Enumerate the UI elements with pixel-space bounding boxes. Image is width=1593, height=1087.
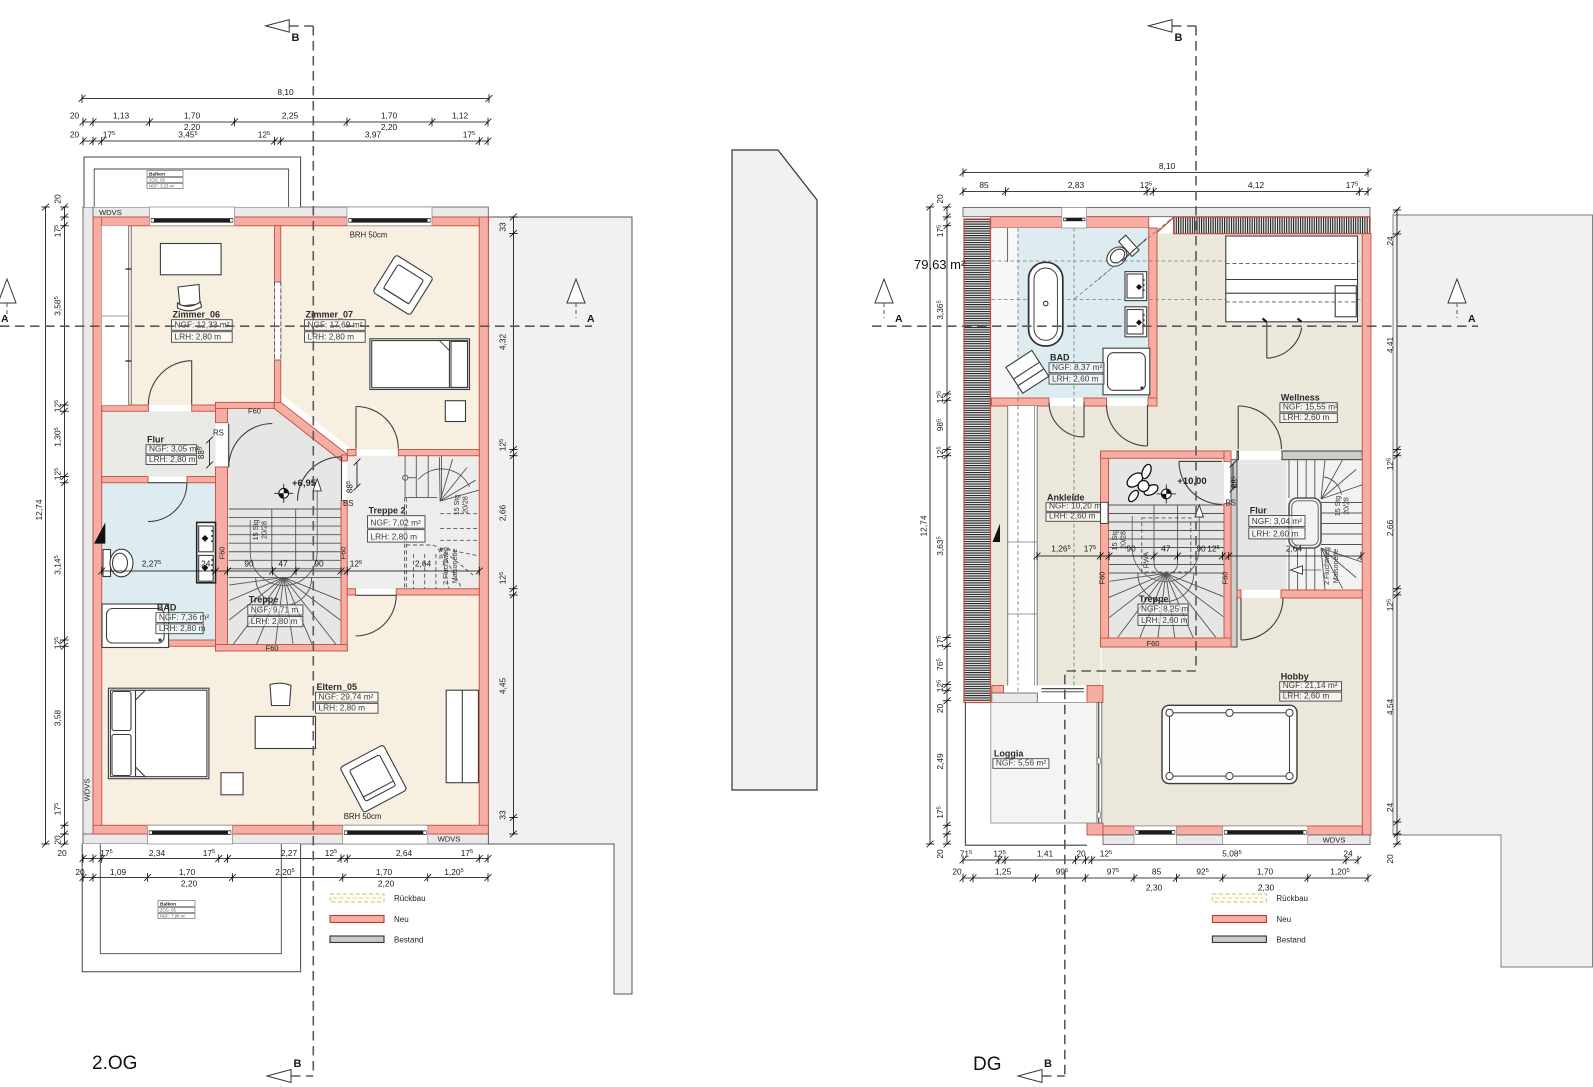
- svg-text:DG: DG: [973, 1054, 1002, 1075]
- svg-text:BRH 50cm: BRH 50cm: [350, 231, 388, 240]
- svg-text:2,20: 2,20: [181, 879, 198, 889]
- svg-text:LRH: 2,80 m: LRH: 2,80 m: [159, 623, 206, 633]
- svg-text:2,30: 2,30: [1146, 883, 1163, 893]
- svg-text:NGF: 29,74 m²: NGF: 29,74 m²: [319, 691, 374, 701]
- svg-text:A: A: [1, 313, 9, 325]
- svg-text:Neu: Neu: [1276, 915, 1291, 924]
- svg-text:Maisonette: Maisonette: [452, 549, 459, 583]
- svg-text:LRH: 2,80 m: LRH: 2,80 m: [308, 332, 355, 342]
- svg-text:NGF: 17,69 m²: NGF: 17,69 m²: [308, 320, 363, 330]
- svg-text:90: 90: [1196, 544, 1206, 554]
- svg-text:NGF: 7,02 m²: NGF: 7,02 m²: [371, 518, 421, 528]
- svg-text:1,70: 1,70: [184, 111, 201, 121]
- svg-text:1,70: 1,70: [179, 867, 196, 877]
- svg-text:LRH: 2,80 m: LRH: 2,80 m: [319, 703, 366, 713]
- svg-text:4,45: 4,45: [498, 678, 508, 695]
- svg-text:RS: RS: [213, 429, 224, 438]
- svg-text:85: 85: [1152, 867, 1162, 877]
- svg-text:Balkon: Balkon: [160, 902, 176, 908]
- svg-text:F60: F60: [1147, 639, 1160, 648]
- svg-text:20: 20: [935, 849, 945, 859]
- svg-text:Balkon: Balkon: [149, 172, 165, 178]
- svg-text:20: 20: [935, 194, 945, 204]
- svg-text:LRH: 2,80 m: LRH: 2,80 m: [149, 454, 196, 464]
- svg-text:90: 90: [244, 559, 254, 569]
- svg-text:F60: F60: [248, 407, 261, 416]
- svg-text:Treppe: Treppe: [1139, 594, 1169, 604]
- svg-text:2OG_05: 2OG_05: [149, 178, 166, 183]
- svg-text:LRH: 2,60 m: LRH: 2,60 m: [1252, 528, 1299, 538]
- svg-text:2,66: 2,66: [498, 505, 508, 522]
- svg-text:F60: F60: [1098, 572, 1107, 585]
- svg-text:20: 20: [75, 867, 85, 877]
- svg-text:RWA: RWA: [1142, 552, 1151, 569]
- svg-text:BRH 50cm: BRH 50cm: [344, 812, 382, 821]
- svg-text:4,12: 4,12: [1248, 180, 1265, 190]
- svg-text:20: 20: [1385, 854, 1395, 864]
- svg-text:3,97: 3,97: [365, 130, 382, 140]
- svg-text:NGF: 3,05 m²: NGF: 3,05 m²: [149, 443, 199, 453]
- svg-text:LRH: 2,60 m: LRH: 2,60 m: [1283, 412, 1330, 422]
- svg-text:B: B: [294, 1058, 302, 1070]
- svg-text:1,70: 1,70: [376, 867, 393, 877]
- svg-text:20/28: 20/28: [1344, 497, 1351, 515]
- svg-text:Flur: Flur: [1250, 505, 1267, 515]
- svg-text:20/28: 20/28: [260, 521, 269, 539]
- svg-text:LRH: 2,80 m: LRH: 2,80 m: [251, 616, 298, 626]
- svg-text:90: 90: [1126, 544, 1136, 554]
- svg-text:LRH: 2,60 m: LRH: 2,60 m: [1283, 691, 1330, 701]
- svg-text:Treppe: Treppe: [249, 595, 279, 605]
- svg-text:2.OG: 2.OG: [92, 1053, 137, 1074]
- svg-text:A: A: [1468, 313, 1476, 325]
- svg-text:A: A: [587, 313, 595, 325]
- svg-text:WDVS: WDVS: [83, 779, 92, 802]
- svg-text:20: 20: [57, 848, 67, 858]
- svg-text:LRH: 2,60 m: LRH: 2,60 m: [1141, 615, 1188, 625]
- svg-text:2,34: 2,34: [149, 848, 166, 858]
- svg-text:LRH: 2,60 m: LRH: 2,60 m: [1049, 511, 1096, 521]
- svg-text:NGF: 9,71 m: NGF: 9,71 m: [251, 605, 299, 615]
- svg-text:12,74: 12,74: [919, 515, 929, 536]
- svg-text:24: 24: [1385, 803, 1395, 813]
- svg-text:2,64: 2,64: [415, 559, 432, 569]
- svg-text:1,09: 1,09: [110, 867, 127, 877]
- svg-text:BAD: BAD: [1050, 353, 1070, 363]
- svg-text:WDVS: WDVS: [1323, 836, 1346, 845]
- svg-text:WDVS: WDVS: [438, 835, 461, 844]
- svg-text:Treppe 2: Treppe 2: [369, 506, 406, 516]
- svg-text:NGF: 21,14 m²: NGF: 21,14 m²: [1283, 680, 1338, 690]
- svg-text:B: B: [292, 32, 300, 44]
- svg-text:2,66: 2,66: [1385, 520, 1395, 537]
- svg-text:15 Stg: 15 Stg: [454, 495, 461, 515]
- svg-text:2,49: 2,49: [935, 753, 945, 770]
- svg-text:NGF: 15,55 m²: NGF: 15,55 m²: [1283, 401, 1338, 411]
- svg-text:2,64: 2,64: [1286, 544, 1303, 554]
- svg-text:15 Stg: 15 Stg: [1335, 496, 1342, 516]
- svg-text:20: 20: [53, 835, 63, 845]
- svg-text:LRH: 2,80 m: LRH: 2,80 m: [175, 332, 222, 342]
- svg-text:F60: F60: [339, 547, 348, 560]
- svg-text:2,30: 2,30: [1258, 883, 1275, 893]
- svg-text:2,20: 2,20: [378, 879, 395, 889]
- svg-text:B: B: [1044, 1058, 1052, 1070]
- svg-text:90: 90: [314, 559, 324, 569]
- svg-text:NGF: 7,90 m²: NGF: 7,90 m²: [160, 914, 186, 919]
- svg-text:F60: F60: [1221, 572, 1230, 585]
- svg-text:24: 24: [1385, 236, 1395, 246]
- svg-text:2,83: 2,83: [1068, 180, 1085, 190]
- svg-text:2,64: 2,64: [396, 848, 413, 858]
- svg-text:20: 20: [53, 194, 63, 204]
- svg-text:33: 33: [498, 222, 508, 232]
- svg-text:8,10: 8,10: [277, 87, 294, 97]
- svg-text:20: 20: [935, 704, 945, 714]
- svg-text:47: 47: [278, 559, 288, 569]
- svg-text:B: B: [1175, 32, 1183, 44]
- svg-text:85: 85: [979, 180, 989, 190]
- svg-text:Maisonette: Maisonette: [1333, 549, 1340, 583]
- svg-text:1,12: 1,12: [452, 111, 469, 121]
- svg-text:2,25: 2,25: [282, 111, 299, 121]
- svg-text:Bestand: Bestand: [1276, 936, 1305, 945]
- svg-text:Bestand: Bestand: [394, 936, 423, 945]
- svg-text:1,70: 1,70: [381, 111, 398, 121]
- svg-text:BS: BS: [1226, 499, 1236, 508]
- svg-text:NGF: 5,56 m²: NGF: 5,56 m²: [996, 758, 1046, 768]
- svg-text:BS: BS: [343, 499, 353, 508]
- svg-text:79,63 m²: 79,63 m²: [914, 257, 966, 272]
- svg-text:Neu: Neu: [394, 915, 409, 924]
- svg-text:F60: F60: [218, 547, 227, 560]
- svg-text:4,32: 4,32: [498, 334, 508, 351]
- svg-text:2OG_05: 2OG_05: [160, 908, 177, 913]
- svg-text:20/28: 20/28: [463, 496, 470, 514]
- svg-text:NGF: 7,36 m²: NGF: 7,36 m²: [159, 612, 209, 622]
- svg-text:24: 24: [1343, 849, 1353, 859]
- svg-text:Zimmer_06: Zimmer_06: [173, 310, 221, 320]
- svg-text:1,25: 1,25: [995, 867, 1012, 877]
- svg-text:1,70: 1,70: [1257, 867, 1274, 877]
- svg-text:NGF: 10,20 m: NGF: 10,20 m: [1049, 501, 1101, 511]
- svg-text:20: 20: [1076, 849, 1086, 859]
- svg-text:2 Fluchtweg: 2 Fluchtweg: [443, 547, 450, 585]
- svg-text:8,10: 8,10: [1159, 161, 1176, 171]
- svg-text:LRH: 2,80 m: LRH: 2,80 m: [371, 532, 418, 542]
- svg-text:NGF: 8,37 m²: NGF: 8,37 m²: [1052, 362, 1102, 372]
- svg-text:4,41: 4,41: [1385, 337, 1395, 354]
- svg-text:NGF: 8,25 m: NGF: 8,25 m: [1141, 603, 1189, 613]
- svg-text:47: 47: [1161, 544, 1171, 554]
- svg-text:20: 20: [952, 867, 962, 877]
- svg-text:F60: F60: [266, 644, 279, 653]
- svg-text:24: 24: [201, 559, 211, 569]
- svg-text:20: 20: [70, 130, 80, 140]
- svg-text:Rückbau: Rückbau: [1276, 894, 1308, 903]
- svg-text:NGF: 12,33 m²: NGF: 12,33 m²: [175, 320, 230, 330]
- svg-text:3,58: 3,58: [53, 710, 63, 727]
- svg-text:LRH: 2,60 m: LRH: 2,60 m: [1052, 374, 1099, 384]
- svg-text:2 Fluchtweg: 2 Fluchtweg: [1324, 547, 1331, 585]
- svg-text:2,20: 2,20: [381, 122, 398, 132]
- svg-text:4,54: 4,54: [1385, 699, 1395, 716]
- svg-text:NGF: 3,23 m²: NGF: 3,23 m²: [149, 184, 175, 189]
- svg-text:1,41: 1,41: [1037, 849, 1054, 859]
- svg-text:12,74: 12,74: [34, 499, 44, 520]
- svg-text:2,27: 2,27: [281, 848, 298, 858]
- svg-text:A: A: [895, 313, 903, 325]
- svg-text:WDVS: WDVS: [99, 208, 122, 217]
- svg-text:+10,00: +10,00: [1177, 476, 1206, 487]
- svg-text:NGF: 3,04 m²: NGF: 3,04 m²: [1252, 516, 1302, 526]
- svg-text:Rückbau: Rückbau: [394, 894, 426, 903]
- svg-text:20: 20: [70, 111, 80, 121]
- svg-text:1,13: 1,13: [113, 111, 130, 121]
- svg-text:33: 33: [498, 810, 508, 820]
